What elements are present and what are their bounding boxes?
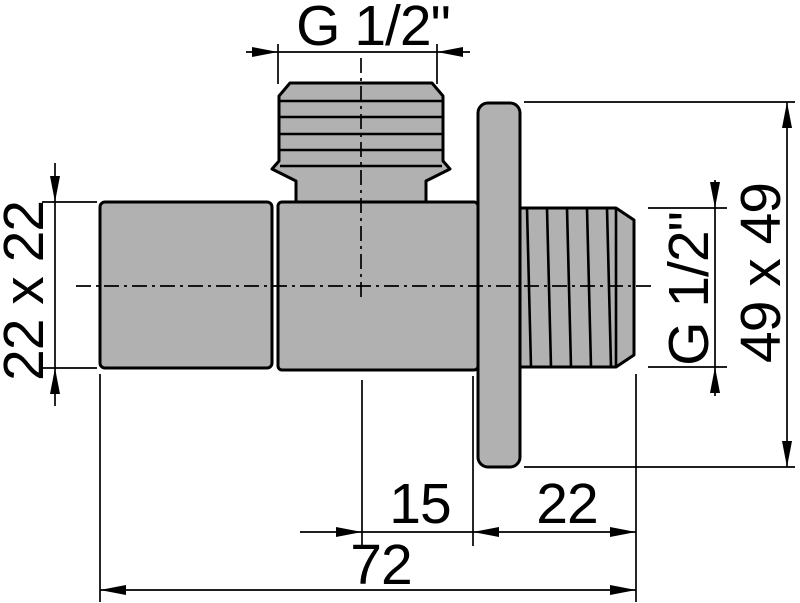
dim-label-wall-stub: 22 xyxy=(536,472,597,536)
valve-body-left-block xyxy=(100,202,272,368)
dimension-right-thread: G 1/2" xyxy=(648,180,727,396)
dim-label-left-body: 22 x 22 xyxy=(0,201,56,381)
dim-label-center-to-wall: 15 xyxy=(389,472,450,536)
wall-plate xyxy=(478,103,520,467)
dim-label-top-thread: G 1/2" xyxy=(296,0,450,58)
dim-label-plate: 49 x 49 xyxy=(729,183,793,363)
dim-label-right-thread: G 1/2" xyxy=(657,212,721,366)
technical-drawing-canvas: G 1/2" 22 x 22 G 1/2" 49 x 49 15 22 xyxy=(0,0,800,603)
dim-label-total-length: 72 xyxy=(350,533,411,597)
